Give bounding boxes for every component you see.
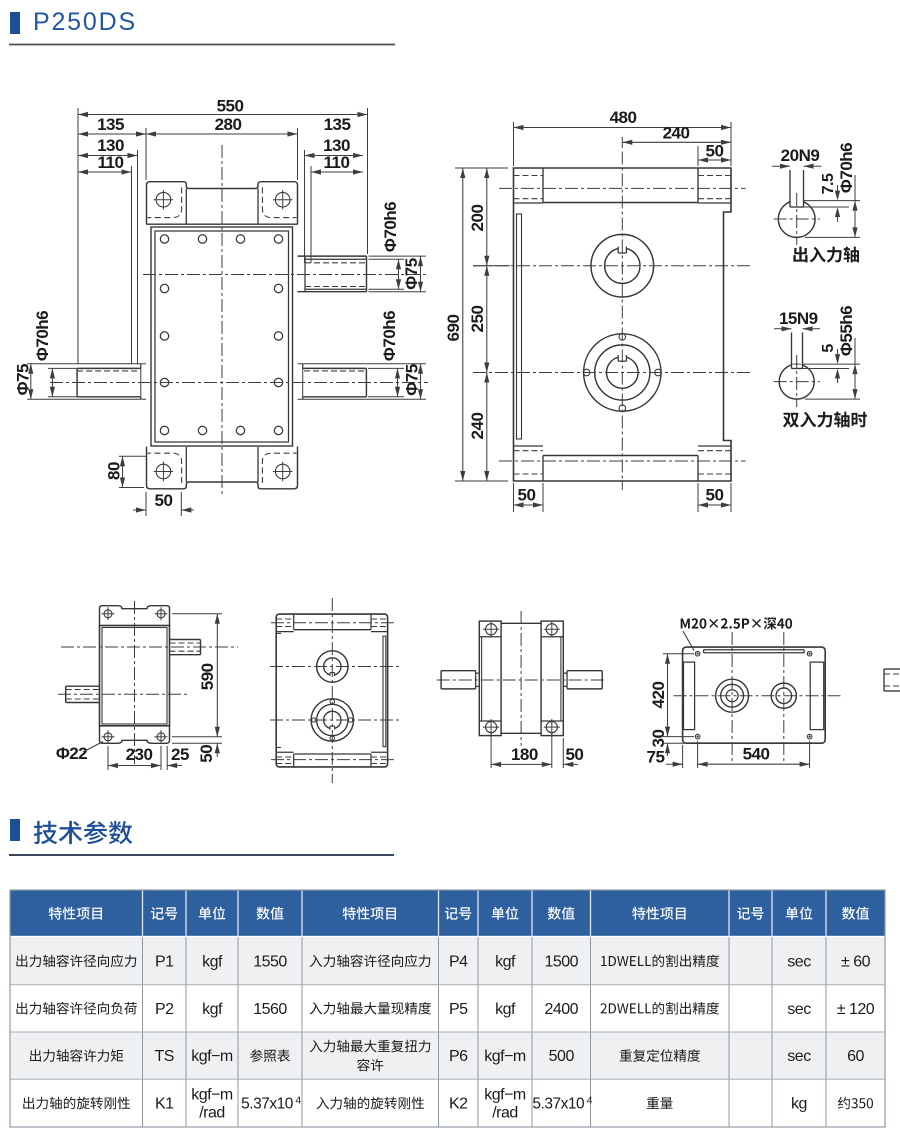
svg-text:4: 4 <box>295 1095 301 1107</box>
svg-text:kgf: kgf <box>202 1001 223 1018</box>
svg-text:25: 25 <box>171 745 189 764</box>
svg-text:kgf: kgf <box>202 954 223 971</box>
svg-text:240: 240 <box>468 413 487 440</box>
svg-text:P250DS: P250DS <box>33 8 137 36</box>
svg-text:60: 60 <box>847 1048 864 1065</box>
svg-text:480: 480 <box>610 108 637 127</box>
svg-text:Φ70h6: Φ70h6 <box>380 311 399 361</box>
svg-text:1560: 1560 <box>253 1001 287 1018</box>
svg-text:kgf: kgf <box>495 1001 516 1018</box>
svg-text:sec: sec <box>787 1001 811 1018</box>
svg-text:180: 180 <box>511 745 538 764</box>
svg-text:690: 690 <box>444 315 463 342</box>
svg-text:K2: K2 <box>449 1096 468 1113</box>
svg-text:P2: P2 <box>155 1001 174 1018</box>
svg-text:kgf−m: kgf−m <box>191 1087 233 1104</box>
svg-text:420: 420 <box>649 682 668 709</box>
svg-text:Φ75: Φ75 <box>402 258 421 289</box>
svg-text:50: 50 <box>706 142 724 161</box>
svg-text:135: 135 <box>324 115 351 134</box>
svg-text:135: 135 <box>97 115 124 134</box>
svg-text:kg: kg <box>791 1096 807 1113</box>
svg-text:4: 4 <box>587 1095 593 1107</box>
svg-text:5.37x10: 5.37x10 <box>241 1096 294 1113</box>
svg-text:sec: sec <box>787 954 811 971</box>
svg-text:P4: P4 <box>449 954 468 971</box>
svg-text:590: 590 <box>198 663 217 690</box>
svg-text:K1: K1 <box>155 1096 174 1113</box>
svg-text:50: 50 <box>197 745 216 763</box>
svg-text:/rad: /rad <box>199 1105 225 1122</box>
svg-text:Φ22: Φ22 <box>56 744 87 763</box>
svg-text:Φ70h6: Φ70h6 <box>381 202 400 252</box>
svg-text:kgf−m: kgf−m <box>191 1048 233 1065</box>
svg-text:110: 110 <box>98 153 124 172</box>
svg-text:50: 50 <box>565 745 583 764</box>
svg-text:50: 50 <box>518 486 536 505</box>
svg-text:2400: 2400 <box>544 1001 578 1018</box>
svg-text:P5: P5 <box>449 1001 468 1018</box>
svg-text:500: 500 <box>549 1048 575 1065</box>
svg-text:550: 550 <box>217 97 244 116</box>
svg-text:30: 30 <box>649 730 668 748</box>
svg-text:kgf−m: kgf−m <box>484 1087 526 1104</box>
svg-text:± 60: ± 60 <box>841 954 871 971</box>
svg-text:15N9: 15N9 <box>779 309 818 328</box>
svg-text:110: 110 <box>324 153 350 172</box>
svg-text:kgf−m: kgf−m <box>484 1048 526 1065</box>
svg-text:± 120: ± 120 <box>837 1001 875 1018</box>
svg-text:Φ70h6: Φ70h6 <box>33 311 52 361</box>
svg-text:P6: P6 <box>449 1048 468 1065</box>
svg-text:250: 250 <box>468 306 487 333</box>
svg-text:5.37x10: 5.37x10 <box>532 1096 585 1113</box>
svg-text:5: 5 <box>820 344 837 353</box>
svg-text:P1: P1 <box>155 954 174 971</box>
svg-text:Φ70h6: Φ70h6 <box>837 143 856 193</box>
svg-text:/rad: /rad <box>492 1105 518 1122</box>
svg-text:200: 200 <box>468 205 487 232</box>
svg-text:Φ55h6: Φ55h6 <box>837 306 856 356</box>
svg-text:sec: sec <box>787 1048 811 1065</box>
svg-text:20N9: 20N9 <box>781 146 820 165</box>
svg-text:7.5: 7.5 <box>820 173 837 194</box>
svg-text:1550: 1550 <box>253 954 287 971</box>
svg-text:1500: 1500 <box>544 954 578 971</box>
svg-text:75: 75 <box>647 748 665 767</box>
svg-text:TS: TS <box>155 1048 174 1065</box>
svg-text:kgf: kgf <box>495 954 516 971</box>
svg-text:80: 80 <box>105 462 124 480</box>
svg-text:230: 230 <box>126 745 153 764</box>
svg-text:50: 50 <box>155 491 173 510</box>
svg-text:540: 540 <box>743 745 770 764</box>
svg-text:50: 50 <box>706 486 724 505</box>
svg-text:280: 280 <box>215 115 242 134</box>
svg-text:240: 240 <box>663 124 690 143</box>
